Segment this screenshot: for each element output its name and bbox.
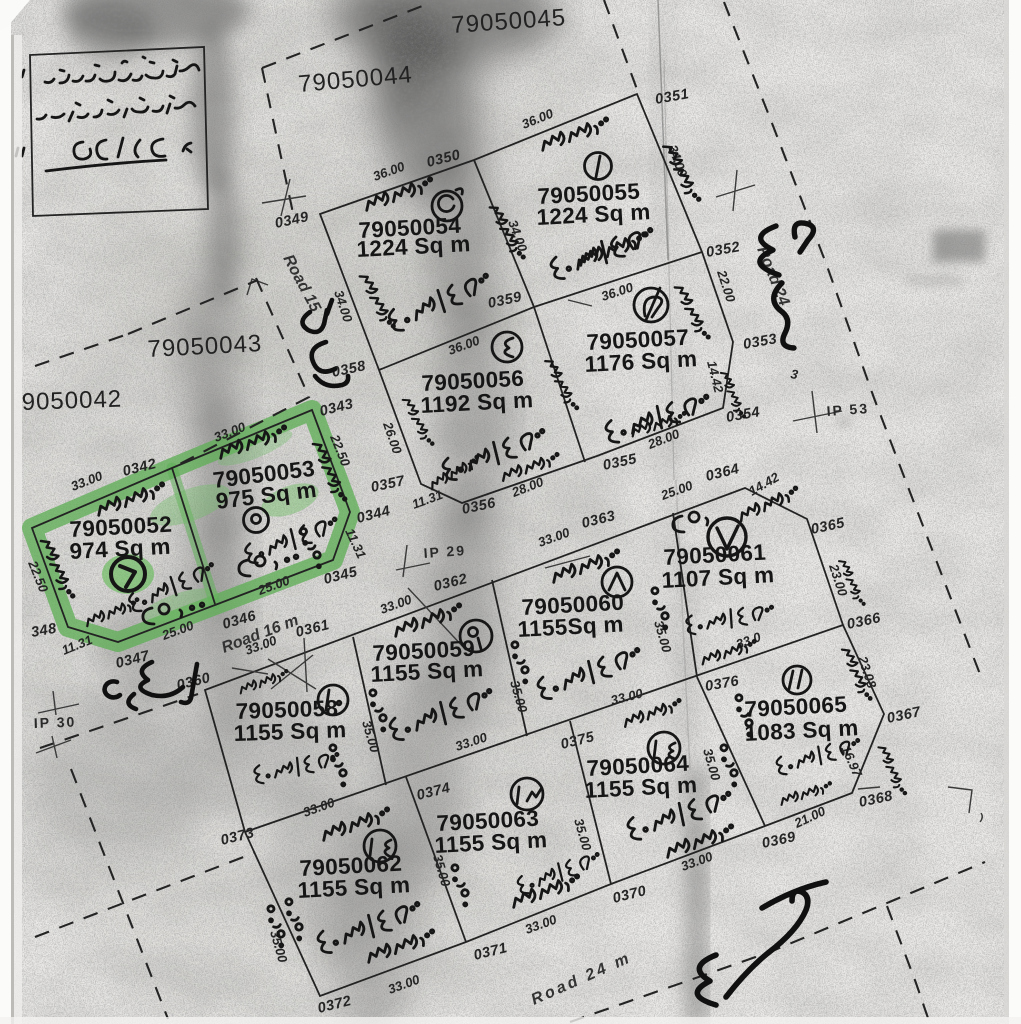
- svg-text:9050042: 9050042: [21, 386, 122, 416]
- svg-text:IP 30: IP 30: [34, 714, 77, 731]
- svg-text:IP 53: IP 53: [826, 400, 869, 419]
- svg-text:IP 29: IP 29: [423, 542, 466, 561]
- svg-text:1155 Sq m: 1155 Sq m: [233, 717, 347, 746]
